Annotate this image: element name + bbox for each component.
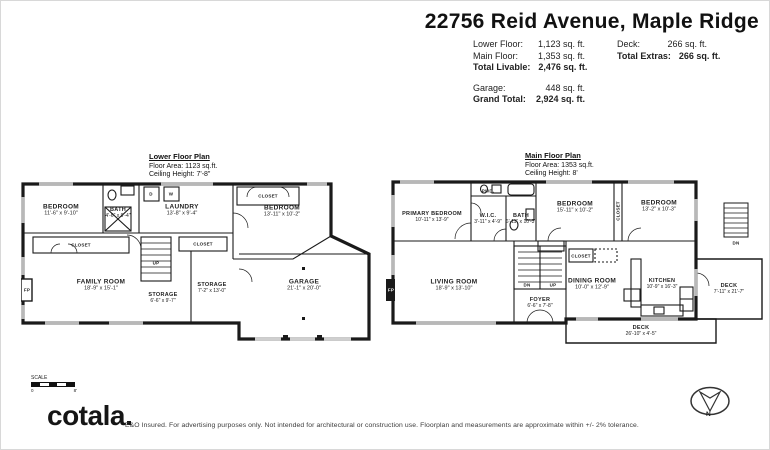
stats-left: Lower Floor: 1,123 sq. ft. Main Floor: 1…: [473, 39, 585, 106]
stats-right: Deck: 266 sq. ft. Total Extras: 266 sq. …: [617, 39, 707, 62]
dryer-label: D: [149, 192, 152, 197]
scale-start: 0: [31, 388, 34, 393]
room-label-lower-bedroom-2: BEDROOM 13'-11" x 10'-2": [264, 205, 300, 218]
floorplan-sheet: 22756 Reid Avenue, Maple Ridge Lower Flo…: [0, 0, 770, 450]
room-label-storage-1: STORAGE 6'-6" x 9'-7": [148, 292, 177, 304]
room-label-primary-bedroom: PRIMARY BEDROOM 10'-11" x 13'-9": [402, 211, 462, 223]
fireplace-label: FP: [388, 288, 394, 293]
stat-grand-total: Grand Total: 2,924 sq. ft.: [473, 94, 585, 106]
disclaimer-text: E&O Insured. For advertising purposes on…: [125, 422, 705, 429]
compass-north-icon: [689, 386, 735, 420]
stat-lower-floor: Lower Floor: 1,123 sq. ft.: [473, 39, 585, 51]
room-label-dining-room: DINING ROOM 10'-0" x 12'-9": [568, 278, 616, 291]
stairs-up-label: UP: [153, 261, 160, 266]
room-label-wic: W.I.C. 3'-11" x 4'-9": [474, 213, 502, 225]
closet-label: CLOSET: [571, 254, 590, 259]
room-label-deck-bottom: DECK 26'-10" x 4'-5": [626, 325, 657, 337]
scale-bar-graphic: [31, 382, 75, 387]
room-label-garage: GARAGE 21'-1" x 20'-0": [287, 279, 321, 292]
room-label-lower-laundry: LAUNDRY 13'-8" x 9'-4": [165, 204, 199, 217]
fireplace-label: FP: [24, 288, 30, 293]
scale-label: SCALE: [31, 375, 77, 381]
compass-n-label: N: [706, 411, 711, 418]
room-label-lower-bath: BATH 4'-6" x 9'-4": [105, 207, 130, 219]
room-label-kitchen: KITCHEN 10'-9" x 16'-3": [647, 278, 678, 290]
stat-total-livable: Total Livable: 2,476 sq. ft.: [473, 62, 585, 74]
stairs-dn-label: DN: [524, 283, 531, 288]
closet-label: CLOSET: [71, 243, 90, 248]
stat-total-extras: Total Extras: 266 sq. ft.: [617, 51, 707, 63]
scale-bar: SCALE 0 8': [31, 375, 77, 393]
closet-label: CLOSET: [193, 242, 212, 247]
exterior-stairs-dn-label: DN: [733, 241, 740, 246]
room-label-family-room: FAMILY ROOM 18'-9" x 15'-1": [77, 279, 125, 292]
room-label-lower-bedroom-1: BEDROOM 11'-6" x 9'-10": [43, 204, 79, 217]
washer-label: W: [169, 192, 173, 197]
scale-end: 8': [74, 388, 77, 393]
room-label-main-bedroom-2: BEDROOM 13'-2" x 10'-3": [641, 200, 677, 213]
closet-label: CLOSET: [258, 194, 277, 199]
stairs-up-label: UP: [550, 283, 557, 288]
room-label-deck-right: DECK 7'-11" x 21'-7": [714, 283, 744, 295]
page-title: 22756 Reid Avenue, Maple Ridge: [425, 10, 759, 34]
cotala-logo: cotala: [47, 400, 131, 432]
closet-label: CLOSET: [616, 201, 621, 220]
stat-main-floor: Main Floor: 1,353 sq. ft.: [473, 51, 585, 63]
lower-floor-plan-drawing: [21, 151, 376, 351]
stat-deck: Deck: 266 sq. ft.: [617, 39, 707, 51]
room-label-living-room: LIVING ROOM 18'-9" x 13'-10": [431, 279, 478, 292]
room-label-storage-2: STORAGE 7'-2" x 13'-0": [197, 282, 226, 294]
room-label-main-bedroom-1: BEDROOM 15'-11" x 10'-2": [557, 201, 593, 214]
powder-room-label: PWD.: [482, 189, 495, 194]
main-floor-plan-drawing: [386, 151, 770, 351]
stat-garage: Garage: 448 sq. ft.: [473, 83, 585, 95]
room-label-foyer: FOYER 6'-6" x 7'-8": [527, 297, 552, 309]
room-label-main-bath: BATH 6'-11" x 10'-3": [506, 213, 536, 225]
